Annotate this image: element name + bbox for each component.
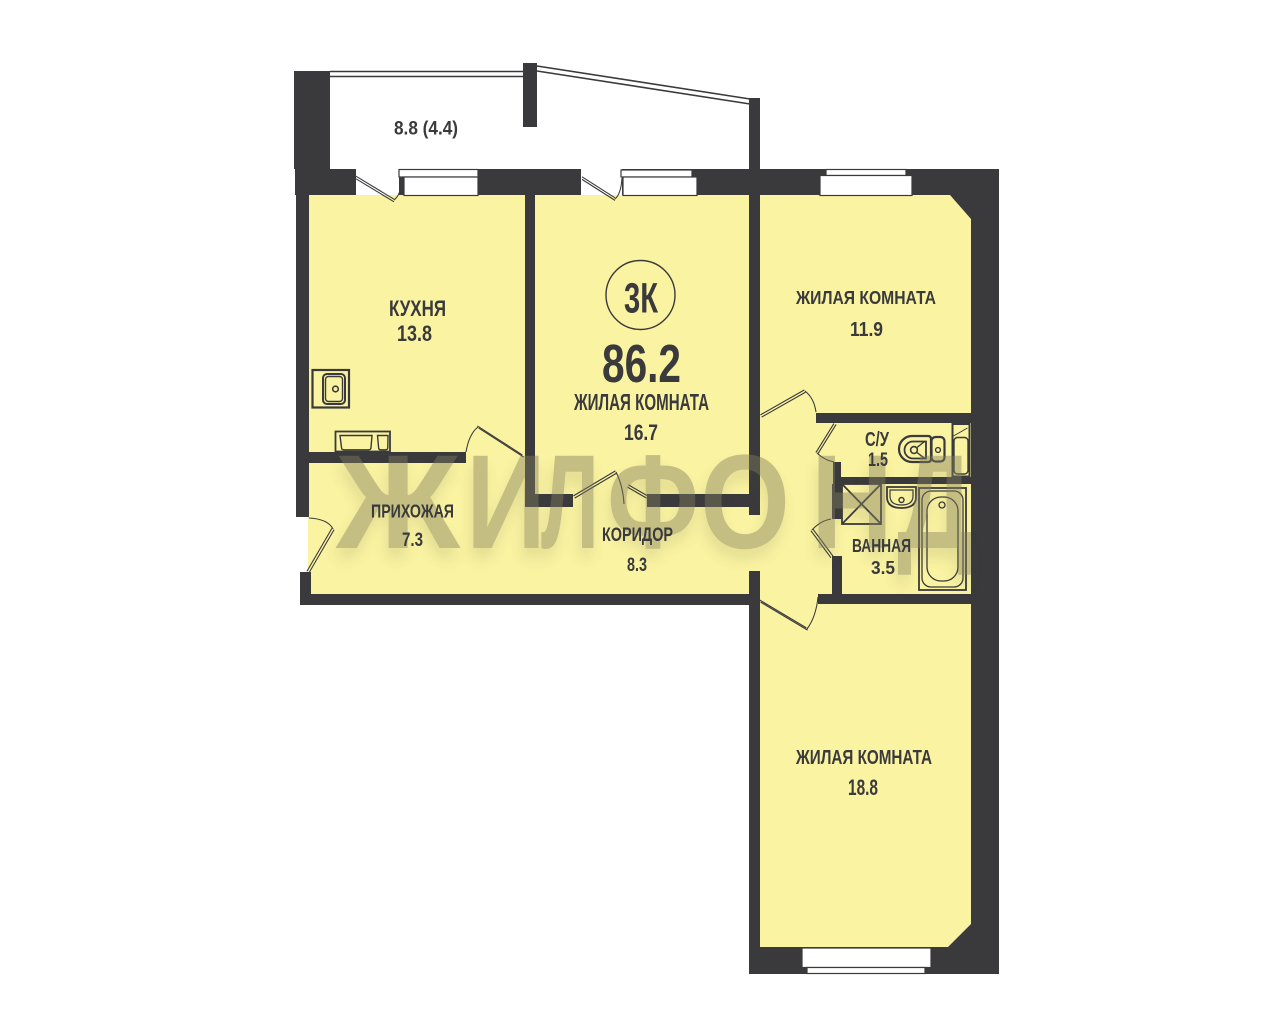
svg-text:ЖИЛАЯ КОМНАТА: ЖИЛАЯ КОМНАТА: [573, 389, 709, 415]
svg-text:18.8: 18.8: [848, 775, 878, 800]
svg-text:ВАННАЯ: ВАННАЯ: [852, 536, 911, 556]
svg-text:Л: Л: [541, 428, 599, 577]
svg-text:ПРИХОЖАЯ: ПРИХОЖАЯ: [371, 501, 454, 522]
svg-text:ЖИЛАЯ КОМНАТА: ЖИЛАЯ КОМНАТА: [795, 746, 932, 769]
svg-text:ЖИЛАЯ КОМНАТА: ЖИЛАЯ КОМНАТА: [795, 288, 936, 308]
svg-text:О: О: [700, 428, 790, 577]
svg-text:3.5: 3.5: [871, 558, 895, 578]
svg-text:Ф: Ф: [607, 428, 699, 577]
svg-text:86.2: 86.2: [602, 335, 681, 394]
svg-text:С/У: С/У: [865, 428, 889, 451]
svg-text:КУХНЯ: КУХНЯ: [389, 296, 446, 321]
svg-text:13.8: 13.8: [397, 321, 432, 346]
svg-text:11.9: 11.9: [850, 318, 883, 341]
svg-text:3К: 3К: [624, 275, 659, 323]
svg-text:1.5: 1.5: [868, 450, 888, 471]
svg-text:7.3: 7.3: [402, 530, 423, 551]
svg-text:И: И: [466, 428, 546, 577]
svg-text:КОРИДОР: КОРИДОР: [602, 525, 673, 546]
svg-text:8.8 (4.4): 8.8 (4.4): [394, 119, 458, 140]
svg-text:16.7: 16.7: [624, 420, 658, 445]
svg-text:8.3: 8.3: [627, 555, 647, 576]
